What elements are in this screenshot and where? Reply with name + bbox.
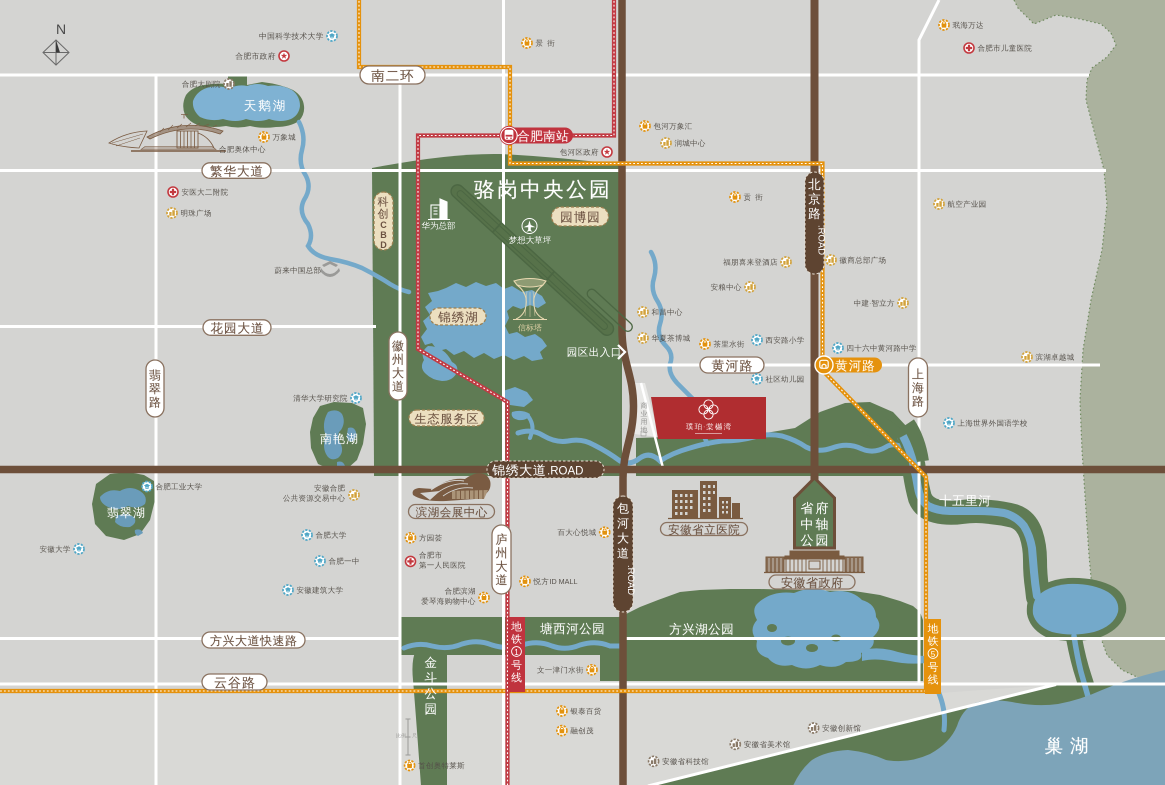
svg-text:.ROAD: .ROAD xyxy=(625,565,636,595)
svg-text:ID MALL: ID MALL xyxy=(550,577,578,586)
svg-text:.ROAD: .ROAD xyxy=(816,225,827,255)
svg-text:C: C xyxy=(380,220,387,230)
svg-text:D: D xyxy=(380,240,387,250)
svg-text:1: 1 xyxy=(514,648,519,657)
svg-text:B: B xyxy=(380,230,387,240)
svg-text:N: N xyxy=(56,21,66,37)
svg-text:5: 5 xyxy=(931,650,936,659)
svg-text:.ROAD: .ROAD xyxy=(547,466,583,478)
